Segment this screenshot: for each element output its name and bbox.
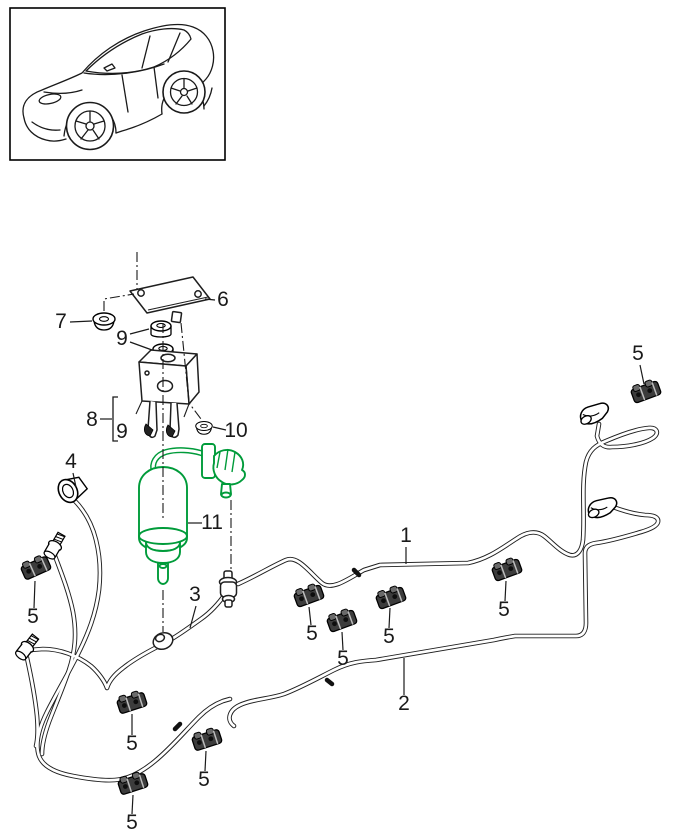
clip-5 bbox=[629, 378, 661, 404]
callout-5-e[interactable]: 5 bbox=[306, 622, 318, 645]
diagram-canvas: 1 2 3 4 5 5 5 5 5 5 5 5 5 6 7 8 9 9 10 1… bbox=[0, 0, 693, 830]
callout-9-a[interactable]: 9 bbox=[116, 327, 128, 350]
hose-end-fitting bbox=[54, 472, 89, 506]
callout-8[interactable]: 8 bbox=[86, 408, 98, 431]
clip-5 bbox=[117, 770, 149, 795]
callout-10[interactable]: 10 bbox=[224, 419, 247, 442]
callout-1[interactable]: 1 bbox=[400, 524, 412, 547]
callout-5-c[interactable]: 5 bbox=[383, 625, 395, 648]
callout-4[interactable]: 4 bbox=[65, 450, 77, 473]
callout-5-f[interactable]: 5 bbox=[27, 605, 39, 628]
callout-3[interactable]: 3 bbox=[189, 583, 201, 606]
callout-5-d[interactable]: 5 bbox=[337, 647, 349, 670]
callout-5-g[interactable]: 5 bbox=[126, 732, 138, 755]
clip-5 bbox=[19, 553, 51, 580]
fuel-lines bbox=[27, 424, 658, 780]
callout-2[interactable]: 2 bbox=[398, 692, 410, 715]
callout-labels: 1 2 3 4 5 5 5 5 5 5 5 5 5 6 7 8 9 9 10 1… bbox=[27, 288, 644, 830]
grommet-9-upper bbox=[151, 321, 171, 337]
callout-5-a[interactable]: 5 bbox=[632, 342, 644, 365]
nut-10 bbox=[196, 422, 213, 435]
clip-5 bbox=[490, 556, 522, 582]
mounting-plate-6 bbox=[130, 277, 210, 323]
callout-11[interactable]: 11 bbox=[201, 511, 223, 534]
parts-diagram-page: 1 2 3 4 5 5 5 5 5 5 5 5 5 6 7 8 9 9 10 1… bbox=[0, 0, 693, 830]
tube-joint-marks bbox=[175, 570, 359, 729]
callout-5-h[interactable]: 5 bbox=[198, 768, 210, 791]
line2-elbow-connector bbox=[586, 493, 618, 523]
clip-5 bbox=[292, 582, 324, 608]
callout-6[interactable]: 6 bbox=[217, 288, 229, 311]
vehicle-thumbnail bbox=[10, 8, 225, 160]
callout-5-i[interactable]: 5 bbox=[126, 811, 138, 830]
nut-7 bbox=[93, 313, 115, 330]
callout-5-b[interactable]: 5 bbox=[498, 598, 510, 621]
clip-5 bbox=[191, 726, 223, 751]
holder-bracket-8 bbox=[136, 350, 199, 437]
fuel-line-3 bbox=[30, 593, 226, 688]
callout-7[interactable]: 7 bbox=[55, 310, 67, 333]
fuel-filter-11-highlighted[interactable] bbox=[139, 444, 245, 584]
line1-elbow-connector bbox=[579, 400, 609, 429]
clip-5 bbox=[374, 584, 406, 610]
fuel-line-2 bbox=[229, 504, 658, 726]
clip-5 bbox=[116, 689, 148, 714]
mounting-bracket-assembly bbox=[93, 277, 212, 437]
clip-5 bbox=[325, 607, 357, 633]
callout-9-b[interactable]: 9 bbox=[116, 420, 128, 443]
